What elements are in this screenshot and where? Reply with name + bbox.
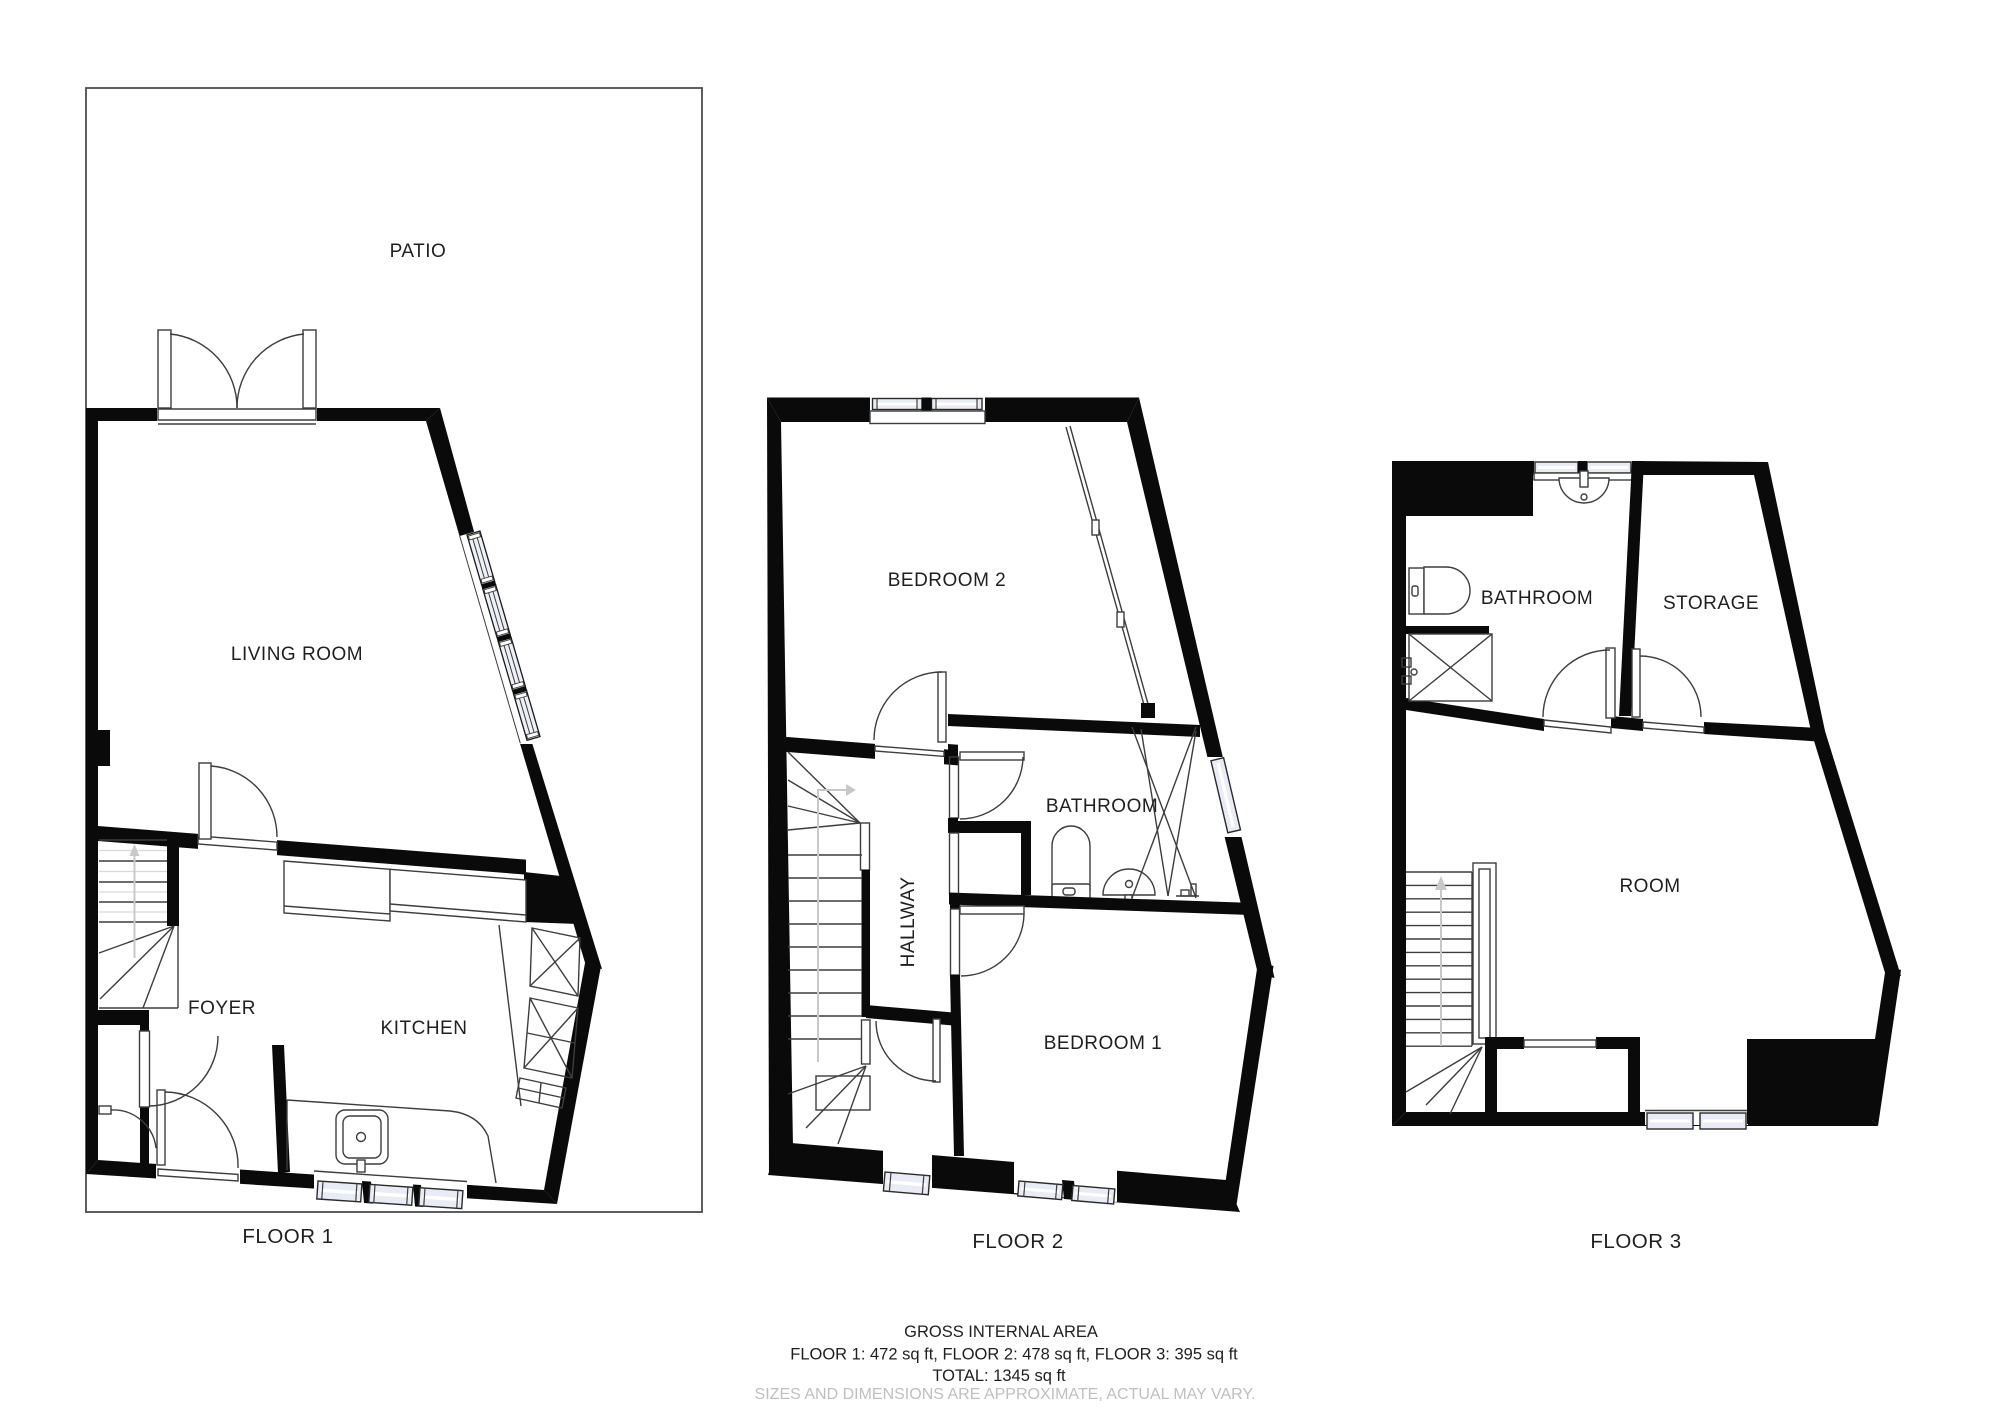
svg-text:PATIO: PATIO [390,241,447,262]
svg-text:ROOM: ROOM [1619,876,1680,897]
svg-text:SIZES AND DIMENSIONS ARE APPRO: SIZES AND DIMENSIONS ARE APPROXIMATE, AC… [755,1386,1256,1403]
svg-text:BEDROOM 2: BEDROOM 2 [888,570,1007,591]
svg-text:HALLWAY: HALLWAY [898,877,919,968]
svg-text:FLOOR 3: FLOOR 3 [1590,1230,1681,1253]
svg-text:FLOOR 2: FLOOR 2 [972,1230,1063,1253]
svg-text:BATHROOM: BATHROOM [1046,796,1158,817]
svg-text:FOYER: FOYER [188,998,256,1019]
svg-text:FLOOR 1: FLOOR 1 [242,1225,333,1248]
svg-text:LIVING ROOM: LIVING ROOM [231,644,363,665]
svg-text:TOTAL: 1345 sq ft: TOTAL: 1345 sq ft [932,1367,1066,1385]
svg-text:STORAGE: STORAGE [1663,593,1759,614]
svg-text:BATHROOM: BATHROOM [1481,588,1593,609]
svg-text:KITCHEN: KITCHEN [381,1018,468,1039]
svg-text:BEDROOM 1: BEDROOM 1 [1044,1033,1163,1054]
svg-text:FLOOR 1: 472 sq ft, FLOOR 2: 4: FLOOR 1: 472 sq ft, FLOOR 2: 478 sq ft, … [790,1346,1238,1364]
svg-text:GROSS INTERNAL AREA: GROSS INTERNAL AREA [904,1323,1098,1341]
